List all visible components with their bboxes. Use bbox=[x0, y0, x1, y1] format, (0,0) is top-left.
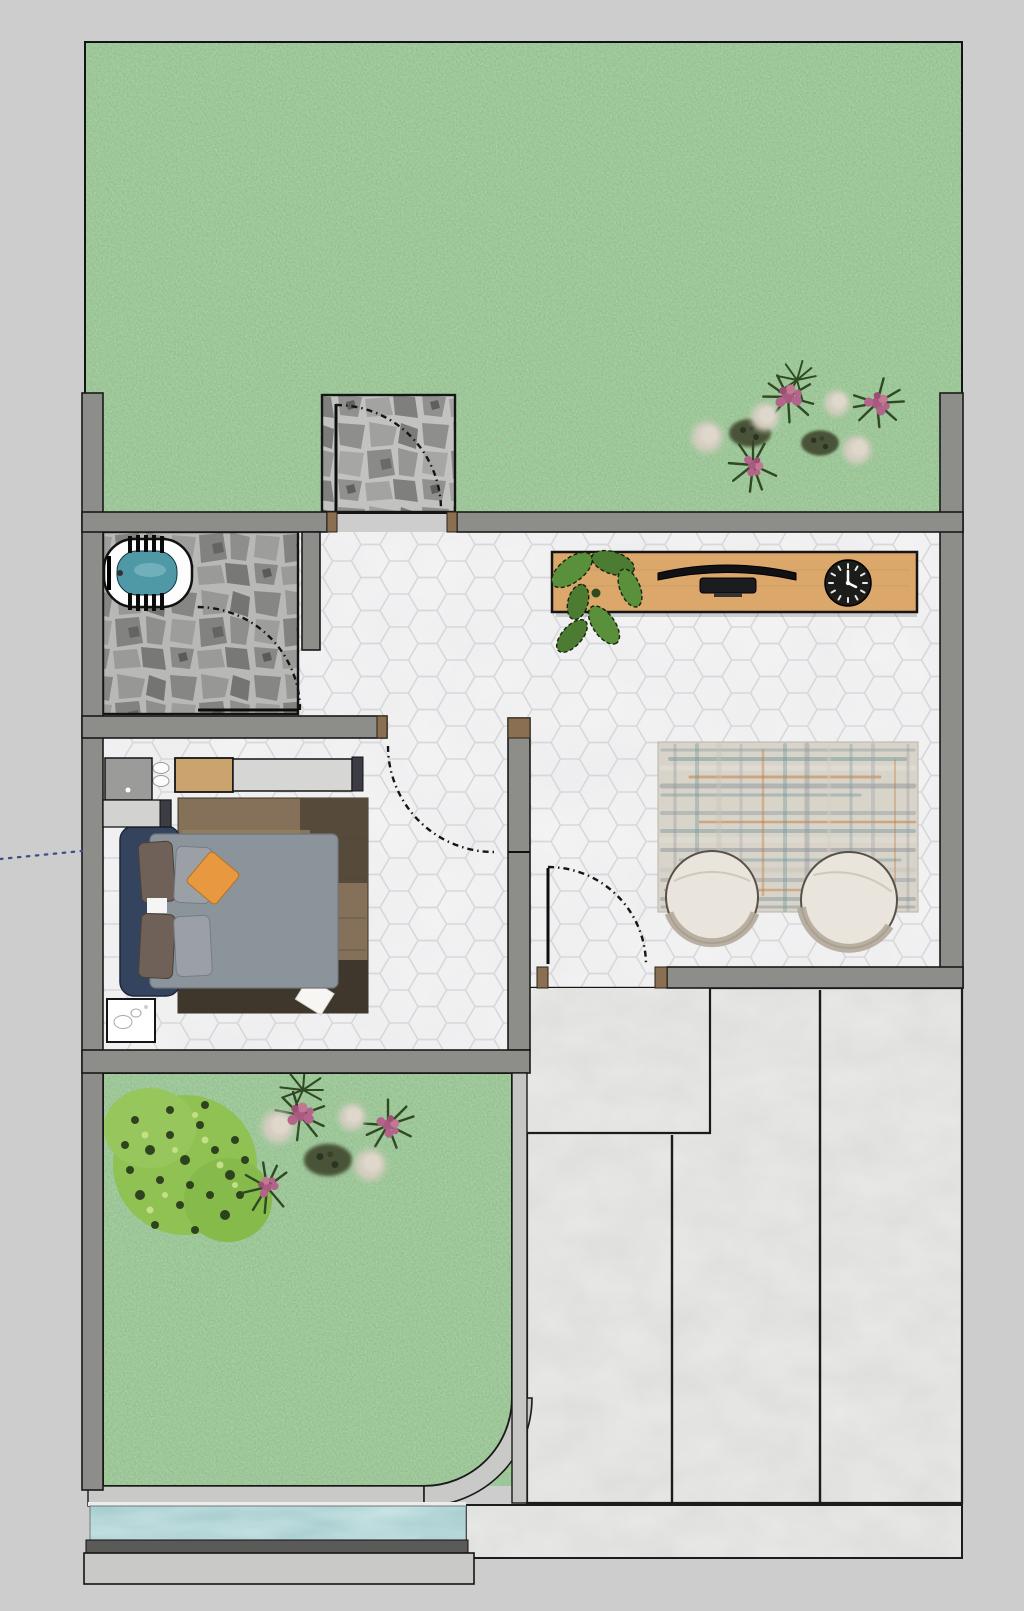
bathtub bbox=[104, 535, 192, 611]
wall-porch-top bbox=[667, 967, 963, 988]
stone-porch-highlight bbox=[530, 988, 710, 1133]
wall-bedroom-right bbox=[508, 718, 530, 1050]
entry-jamb-right bbox=[447, 512, 457, 532]
slipper-2 bbox=[153, 776, 169, 787]
patio-jamb-right bbox=[655, 967, 667, 988]
slipper-1 bbox=[153, 763, 169, 774]
pool-deck-bottom bbox=[84, 1553, 474, 1584]
wall-clock bbox=[825, 560, 871, 606]
pool-edge-dark bbox=[86, 1540, 468, 1553]
wall-main-right bbox=[457, 512, 963, 532]
bedroom-furniture bbox=[103, 757, 368, 1042]
side-table bbox=[105, 758, 152, 800]
nightstand-cup bbox=[131, 1009, 141, 1017]
pool-coping bbox=[88, 1502, 466, 1506]
wardrobe-wood-section bbox=[175, 758, 233, 792]
entry-jamb-left bbox=[327, 512, 337, 532]
double-bed bbox=[120, 826, 338, 996]
pillow-brown-bottom bbox=[138, 913, 175, 979]
bedroom-jamb bbox=[377, 716, 387, 738]
low-shelf-cap bbox=[160, 800, 171, 827]
tv-stand bbox=[714, 593, 742, 597]
wardrobe-gray-section bbox=[233, 759, 352, 791]
nightstand-dot bbox=[144, 1005, 148, 1009]
wardrobe-end-cap bbox=[352, 757, 363, 791]
garden-kerb-wall bbox=[512, 1073, 527, 1503]
floor-plan-canvas bbox=[0, 0, 1024, 1611]
wall-bedroom-bottom bbox=[82, 1050, 530, 1073]
entry-stone-path bbox=[322, 395, 455, 512]
patio-jamb-left bbox=[537, 967, 548, 988]
wall-right-exterior bbox=[940, 393, 963, 988]
nightstand-bowl bbox=[114, 1016, 132, 1029]
wall-main-left bbox=[82, 512, 327, 532]
pod-chair-left bbox=[666, 851, 758, 943]
bathtub-water-glint bbox=[134, 563, 166, 577]
tv-base-box bbox=[700, 578, 756, 593]
pillow-gray-bottom bbox=[173, 915, 212, 977]
bathtub-drain bbox=[117, 570, 123, 576]
bedroom-wall-jamb bbox=[508, 718, 530, 738]
nightstand bbox=[107, 999, 155, 1042]
sidewalk bbox=[466, 1505, 962, 1558]
clock-center bbox=[846, 581, 850, 585]
wall-bedroom-top bbox=[82, 716, 387, 738]
pool-water bbox=[90, 1506, 466, 1540]
wardrobe bbox=[153, 757, 363, 792]
wall-left-exterior bbox=[82, 393, 103, 1490]
side-table-knob bbox=[126, 788, 131, 793]
bed-sheet-fold bbox=[147, 898, 167, 913]
wall-bathroom-right bbox=[302, 532, 320, 650]
pillow-brown-top bbox=[138, 841, 176, 903]
